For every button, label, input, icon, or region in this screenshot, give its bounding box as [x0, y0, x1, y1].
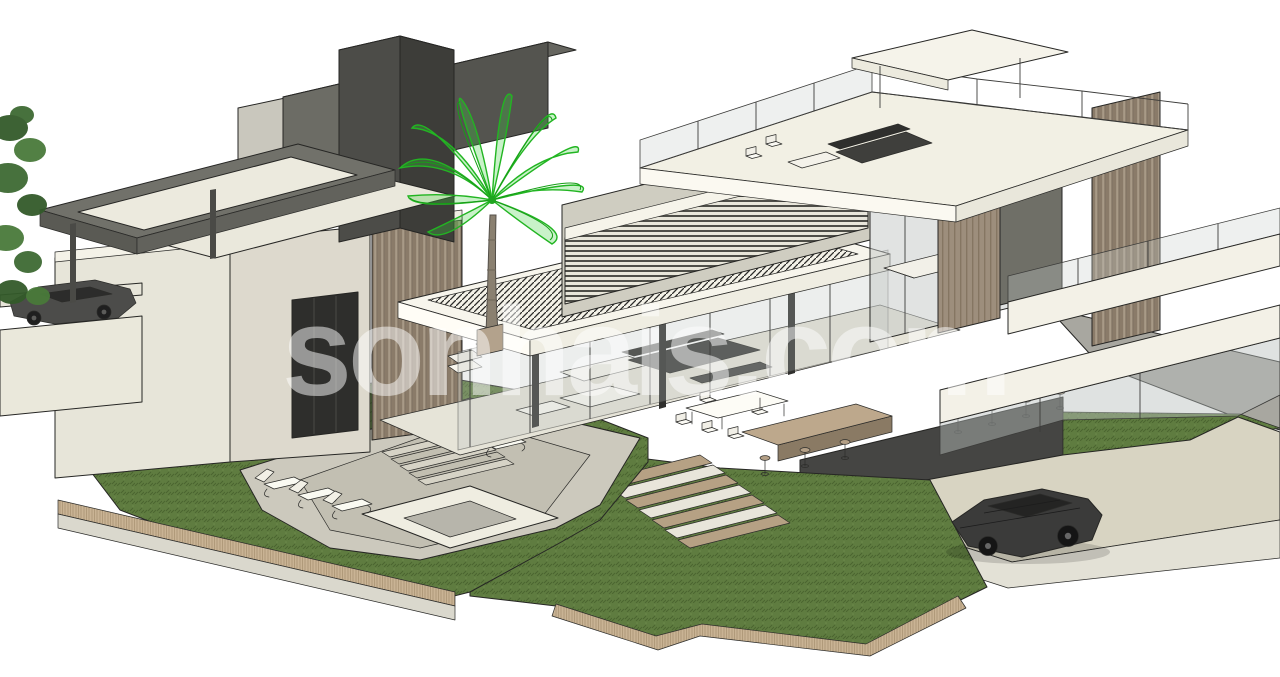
side-tree	[0, 106, 50, 305]
architectural-render: sonhais.com	[0, 0, 1280, 677]
watermark-text: sonhais.com	[282, 281, 1008, 422]
entry-low-wall	[0, 316, 142, 416]
